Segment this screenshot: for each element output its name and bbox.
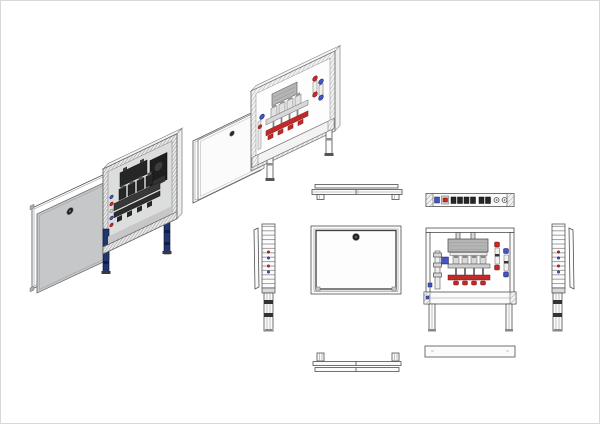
door-edge-right bbox=[569, 228, 574, 289]
door-panel-gray bbox=[37, 180, 109, 293]
top-view-manifold bbox=[426, 194, 514, 207]
bottom-view-open bbox=[425, 346, 515, 357]
junction-box-front bbox=[448, 239, 488, 252]
leg-side-left bbox=[264, 293, 273, 332]
actuator-row-front bbox=[453, 256, 486, 264]
side-view-right bbox=[552, 224, 574, 332]
iso-view-exploded-white bbox=[193, 46, 340, 203]
frame-rail-right bbox=[552, 224, 565, 288]
right-rail bbox=[510, 233, 514, 293]
top-rail bbox=[426, 228, 514, 233]
ball-valves-front bbox=[495, 242, 509, 277]
pump-group-front bbox=[428, 251, 449, 289]
front-view-closed bbox=[311, 226, 401, 294]
cabinet-open-gray bbox=[102, 128, 183, 274]
drawing-canvas bbox=[1, 1, 600, 424]
leg-side-right bbox=[553, 293, 562, 332]
pump-top-view bbox=[435, 197, 440, 203]
top-view-closed bbox=[312, 185, 402, 200]
drawing-page bbox=[0, 0, 600, 424]
cabinet-open-white bbox=[251, 46, 340, 181]
door-face bbox=[37, 180, 109, 293]
return-manifold-front bbox=[448, 275, 490, 280]
bottom-tray-front bbox=[424, 292, 516, 304]
iso-view-exploded-gray bbox=[30, 128, 182, 293]
pump-front bbox=[442, 257, 449, 264]
front-view-open bbox=[424, 228, 516, 332]
supply-manifold-front bbox=[448, 264, 490, 268]
side-view-left bbox=[254, 224, 275, 332]
door-edge-left bbox=[254, 228, 259, 289]
bottom-view-closed bbox=[313, 353, 401, 372]
legs-front bbox=[428, 304, 513, 332]
frame-rail-left bbox=[262, 224, 275, 288]
